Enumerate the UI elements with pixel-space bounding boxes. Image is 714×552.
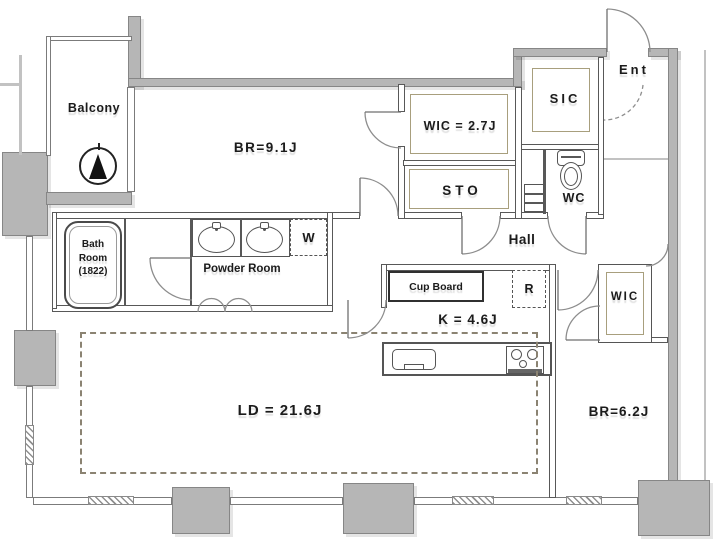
column xyxy=(14,330,56,386)
shelf xyxy=(524,184,544,212)
room-label-hall: Hall xyxy=(494,232,550,247)
wall xyxy=(549,264,556,498)
shelf-line xyxy=(524,202,544,204)
door-arc xyxy=(607,9,650,52)
room-label-wic-sub: WIC xyxy=(598,291,652,303)
bathroom-label-line2: Room xyxy=(64,252,122,266)
closet-trim xyxy=(606,272,644,335)
door-arc xyxy=(566,306,600,340)
wall xyxy=(513,48,607,57)
wall xyxy=(515,87,522,219)
room-label-living-dining: LD = 21.6J xyxy=(220,402,340,419)
wall-fillet-arc xyxy=(646,244,668,266)
column xyxy=(638,480,710,536)
wall xyxy=(398,146,405,219)
shutter-hatch xyxy=(566,496,602,505)
faucet-dot xyxy=(263,228,266,231)
boundary-line xyxy=(704,50,706,480)
refrigerator-space-box: R xyxy=(512,270,546,308)
room-label-bathroom: Bath Room (1822) xyxy=(64,238,122,279)
wall xyxy=(668,48,678,485)
room-label-bedroom-main: BR=9.1J xyxy=(214,140,318,155)
shelf-line xyxy=(524,193,544,195)
column xyxy=(343,483,414,534)
north-arrow-needle xyxy=(89,154,107,179)
wall xyxy=(128,78,522,87)
balcony-rail xyxy=(46,36,132,41)
shutter-hatch xyxy=(25,425,34,465)
room-label-powder-room: Powder Room xyxy=(194,263,290,275)
door-arc xyxy=(360,178,398,216)
washer-space-box: W xyxy=(290,219,327,256)
room-label-sic: SIC xyxy=(540,91,590,106)
room-label-wic-main: WIC = 2.7J xyxy=(408,119,512,133)
wall xyxy=(398,212,462,219)
window-wall xyxy=(26,236,33,331)
bathroom-label-line1: Bath xyxy=(64,238,122,252)
room-label-balcony: Balcony xyxy=(52,101,136,115)
room-label-washer: W xyxy=(302,230,314,245)
cupboard-box: Cup Board xyxy=(388,271,484,302)
wall xyxy=(128,16,141,87)
room-label-refrigerator: R xyxy=(524,282,533,296)
window-wall xyxy=(230,497,343,505)
door-arc xyxy=(604,85,643,120)
door-arc xyxy=(558,270,598,310)
wall xyxy=(403,160,519,166)
vanity-divider xyxy=(240,219,242,257)
column xyxy=(2,152,48,236)
wall xyxy=(381,264,387,308)
wall xyxy=(52,212,57,309)
north-arrow-icon xyxy=(79,147,117,185)
wall xyxy=(52,212,360,219)
wall xyxy=(500,212,548,219)
boundary-line xyxy=(19,55,22,155)
column xyxy=(172,487,230,534)
room-label-kitchen: K = 4.6J xyxy=(424,312,512,327)
shutter-hatch xyxy=(88,496,134,505)
window-wall xyxy=(414,497,638,505)
north-arrow-stem xyxy=(98,143,100,150)
toilet-bowl-inner xyxy=(564,167,578,186)
room-label-storage: STO xyxy=(432,183,492,198)
room-label-entrance: Ent xyxy=(606,62,662,77)
floor-plan: Bath Room (1822) W Cup Board R xyxy=(0,0,714,552)
wall xyxy=(124,219,126,306)
door-arc xyxy=(150,258,192,300)
room-label-cupboard: Cup Board xyxy=(409,281,463,293)
wall xyxy=(327,212,333,306)
wall xyxy=(598,57,604,215)
faucet-dot xyxy=(215,228,218,231)
door-arc xyxy=(548,216,586,254)
wall xyxy=(46,192,132,205)
toilet-tank-line xyxy=(561,156,581,158)
room-label-bedroom-sub: BR=6.2J xyxy=(574,404,664,419)
shutter-hatch xyxy=(452,496,494,505)
door-arc xyxy=(365,112,401,148)
entry-step-line xyxy=(604,158,668,160)
room-label-wc: WC xyxy=(554,191,594,205)
wall xyxy=(398,84,405,112)
balcony-rail xyxy=(46,36,51,156)
boundary-line xyxy=(0,83,20,86)
bathroom-label-line3: (1822) xyxy=(64,265,122,279)
